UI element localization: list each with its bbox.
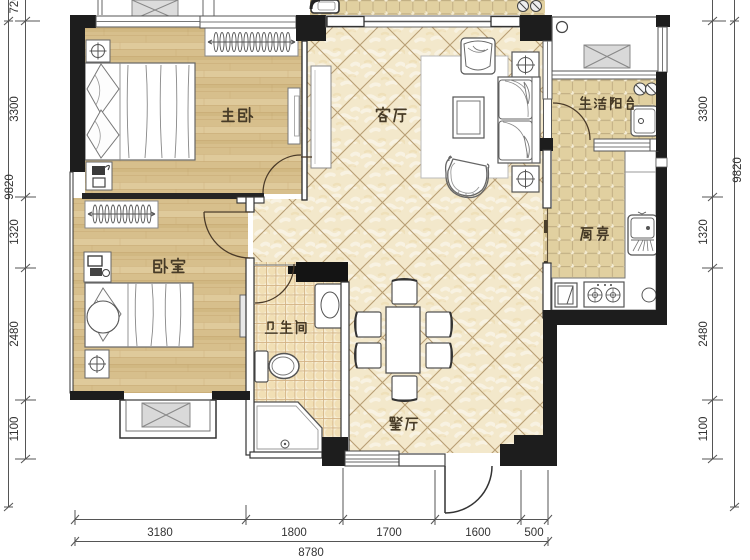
svg-text:1320: 1320: [9, 219, 21, 245]
svg-text:9820: 9820: [4, 174, 16, 200]
svg-text:2480: 2480: [698, 321, 710, 347]
svg-text:2480: 2480: [9, 321, 21, 347]
svg-text:500: 500: [524, 527, 543, 539]
svg-text:1100: 1100: [9, 417, 21, 442]
svg-text:1800: 1800: [281, 527, 307, 539]
svg-text:8780: 8780: [298, 547, 324, 559]
svg-text:9820: 9820: [732, 157, 744, 183]
svg-text:1320: 1320: [698, 219, 710, 245]
svg-text:3180: 3180: [147, 527, 173, 539]
svg-text:1700: 1700: [376, 527, 402, 539]
svg-text:3300: 3300: [698, 96, 710, 122]
svg-text:1600: 1600: [465, 527, 491, 539]
svg-text:720: 720: [9, 0, 21, 14]
svg-text:3300: 3300: [9, 96, 21, 122]
svg-text:1100: 1100: [698, 417, 710, 442]
